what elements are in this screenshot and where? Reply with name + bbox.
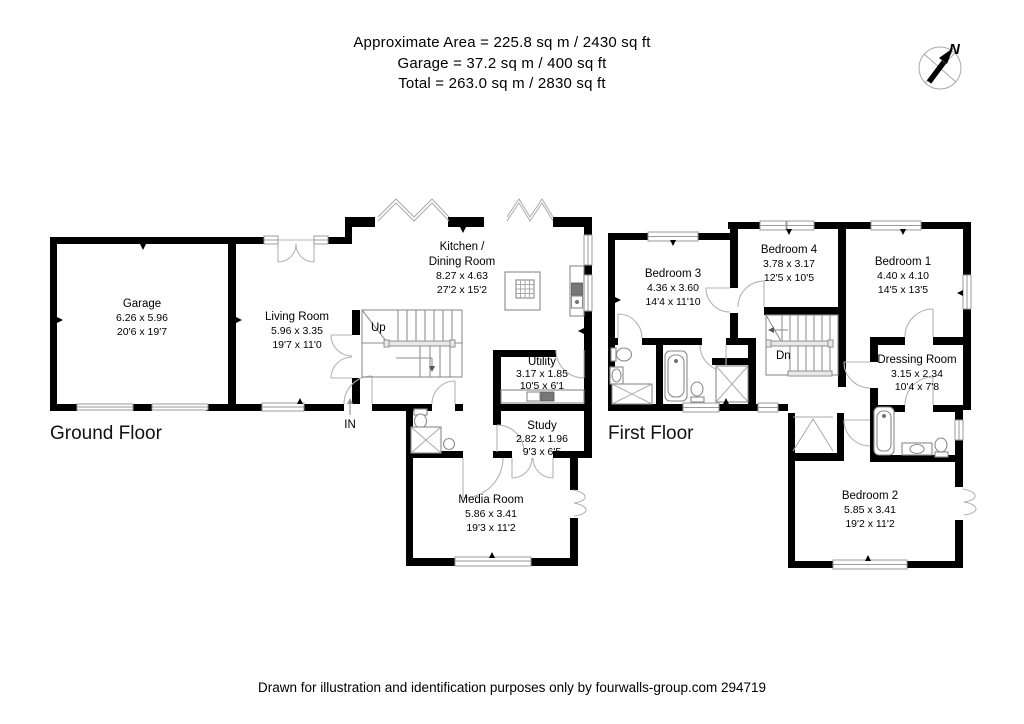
media-room-name: Media Room (458, 494, 523, 506)
garage-metric: 6.26 x 5.96 (116, 312, 168, 324)
compass-north-label: N (949, 41, 961, 58)
bedroom3-metric: 4.36 x 3.60 (647, 282, 699, 294)
kitchen-metric: 8.27 x 4.63 (436, 270, 488, 282)
utility-metric: 3.17 x 1.85 (516, 368, 568, 380)
utility-name: Utility (528, 356, 556, 368)
kitchen-name-line1: Kitchen / (440, 241, 486, 253)
media-room-imperial: 19'3 x 11'2 (466, 522, 516, 534)
ground-floor-title: Ground Floor (50, 423, 163, 444)
dressing-room-metric: 3.15 x 2.34 (891, 368, 943, 380)
study-name: Study (527, 420, 557, 432)
bedroom2-imperial: 19'2 x 11'2 (845, 518, 895, 530)
kitchen-name-line2: Dining Room (429, 256, 495, 268)
bedroom3-imperial: 14'4 x 11'10 (645, 296, 700, 308)
bedroom1-name: Bedroom 1 (875, 256, 931, 268)
floorplan-page: Approximate Area = 225.8 sq m / 2430 sq … (0, 0, 1024, 724)
utility-imperial: 10'5 x 6'1 (520, 380, 564, 392)
bedroom1-imperial: 14'5 x 13'5 (878, 284, 928, 296)
stairs-up-label: Up (371, 322, 386, 334)
garage-imperial: 20'6 x 19'7 (117, 326, 167, 338)
bedroom2-name: Bedroom 2 (842, 490, 898, 502)
garage-name: Garage (123, 298, 161, 310)
living-room-imperial: 19'7 x 11'0 (272, 339, 322, 351)
dressing-room-imperial: 10'4 x 7'8 (895, 381, 939, 393)
study-metric: 2.82 x 1.96 (516, 433, 568, 445)
bedroom2-metric: 5.85 x 3.41 (844, 504, 896, 516)
living-room-metric: 5.96 x 3.35 (271, 325, 323, 337)
ground-floor-labels: Garage 6.26 x 5.96 20'6 x 19'7 Living Ro… (50, 241, 568, 534)
stairs-dn-label: Dn (776, 350, 791, 362)
bedroom3-name: Bedroom 3 (645, 268, 701, 280)
bedroom4-imperial: 12'5 x 10'5 (764, 272, 814, 284)
compass-icon: N (919, 41, 961, 89)
floorplan-drawing: N (0, 0, 1024, 724)
dressing-room-name: Dressing Room (877, 354, 956, 366)
bedroom1-metric: 4.40 x 4.10 (877, 270, 929, 282)
first-floor-stairs (766, 315, 838, 376)
bedroom4-metric: 3.78 x 3.17 (763, 258, 815, 270)
kitchen-imperial: 27'2 x 15'2 (437, 284, 487, 296)
media-room-metric: 5.86 x 3.41 (465, 508, 517, 520)
study-imperial: 9'3 x 6'5 (523, 446, 562, 458)
ground-floor-stairs (362, 310, 462, 377)
first-floor-title: First Floor (608, 423, 694, 444)
first-floor-plan: Bedroom 3 4.36 x 3.60 14'4 x 11'10 Bedro… (608, 221, 976, 569)
bedroom4-name: Bedroom 4 (761, 244, 818, 256)
living-room-name: Living Room (265, 311, 329, 323)
entrance-in-label: IN (344, 419, 356, 431)
disclaimer-text: Drawn for illustration and identificatio… (0, 680, 1024, 695)
